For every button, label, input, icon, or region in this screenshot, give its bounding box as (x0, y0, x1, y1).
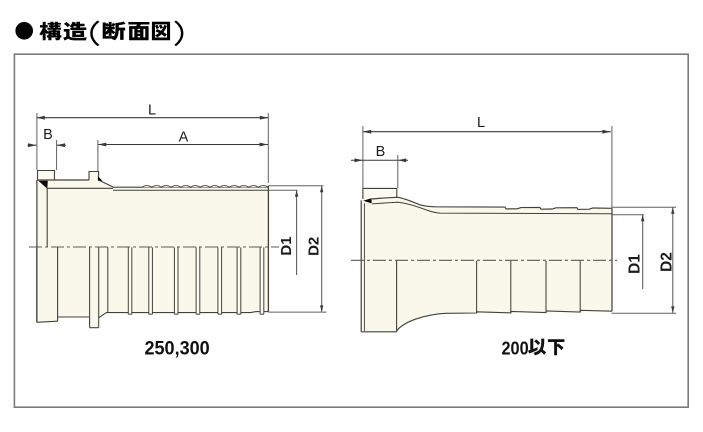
svg-text:D2: D2 (306, 237, 323, 256)
svg-text:L: L (477, 115, 485, 131)
svg-text:B: B (376, 144, 386, 160)
svg-text:L: L (148, 102, 156, 118)
svg-text:250,300: 250,300 (145, 337, 210, 359)
svg-text:D1: D1 (626, 254, 643, 274)
svg-text:B: B (43, 127, 53, 143)
svg-text:200: 200 (502, 338, 529, 359)
svg-text:D2: D2 (658, 252, 675, 272)
svg-text:A: A (179, 129, 189, 145)
svg-text:D1: D1 (278, 236, 295, 255)
